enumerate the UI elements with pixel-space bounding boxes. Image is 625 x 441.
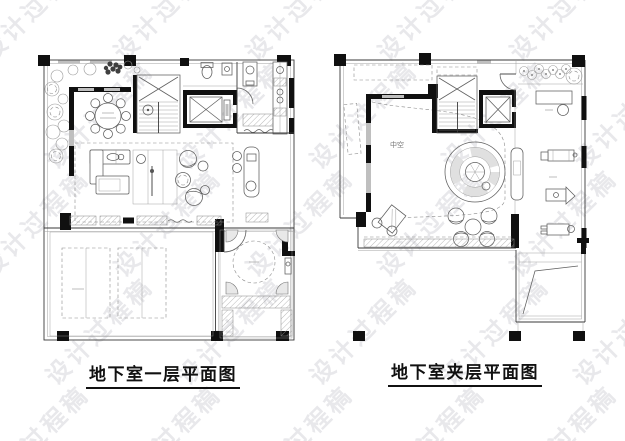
kitchen-area: [237, 62, 294, 134]
page: { "page": {"width": 625, "height": 441, …: [0, 0, 625, 441]
dining-table: [86, 94, 131, 139]
desk: [536, 91, 572, 116]
caption-basement-level1: 地下室一层平面图: [86, 360, 240, 389]
caption-basement-mezzanine: 地下室夹层平面图: [388, 358, 542, 387]
media-console: [511, 148, 523, 200]
floor-plan-basement-mezzanine: 中空: [334, 53, 589, 341]
cabinet-row: [70, 213, 268, 225]
staircase: [133, 75, 180, 133]
corner-table: [378, 205, 406, 233]
elevator-shaft: [183, 90, 237, 128]
staircase: [432, 67, 478, 133]
courtyard-room: [220, 230, 292, 338]
terrace-door: [500, 60, 516, 90]
garage-room: [50, 232, 213, 336]
round-lounge: [445, 142, 505, 202]
elevator-shaft: [479, 90, 516, 128]
floor-plan-basement-level1: [38, 55, 295, 341]
planting-strip: [364, 237, 514, 247]
void-room-label: 中空: [390, 140, 404, 149]
ramp-room: [516, 250, 585, 331]
bar-counter: [233, 147, 260, 197]
planter-flowers: [518, 65, 583, 85]
living-area: [75, 143, 233, 222]
wc-room: [183, 63, 237, 87]
